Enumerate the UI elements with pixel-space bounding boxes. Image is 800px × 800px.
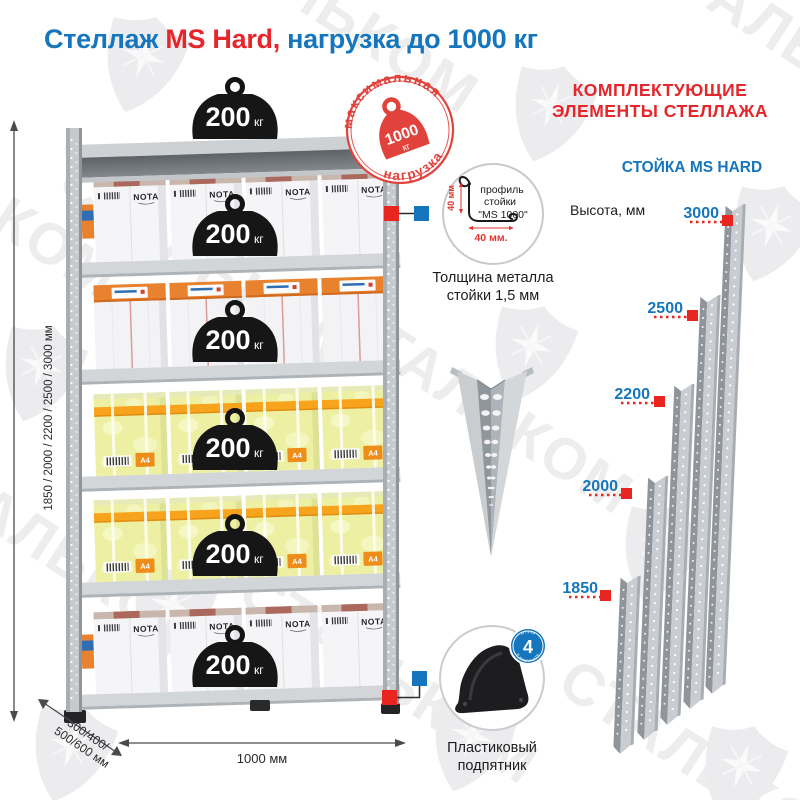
thickness-note-line1: Толщина металла [432, 270, 554, 286]
callout-red-marker [382, 690, 397, 705]
rack-foot [250, 700, 270, 711]
infographic-page: СТАЛЬКОМ СТАЛЬКОМ СТАЛЬКОМ СТАЛЬКОМ СТАЛ… [0, 0, 800, 800]
post-marker [621, 488, 632, 499]
profile-caption-line3: "MS 1000" [478, 209, 528, 221]
callout-blue-marker [412, 671, 427, 686]
width-dimension-label: 1000 мм [237, 751, 287, 766]
post-section-title: СТОЙКА MS HARD [622, 158, 762, 176]
profile-dim-horizontal-label: 40 мм. [474, 232, 507, 244]
post-marker [654, 396, 665, 407]
profile-detail-circle: 40 мм 40 мм. профиль стойки "MS 1000" [443, 164, 543, 264]
callout-blue-marker [414, 206, 429, 221]
height-dimension-label: 1850 / 2000 / 2200 / 2500 / 3000 мм [43, 325, 55, 510]
callout-red-marker [384, 206, 399, 221]
post-height-label: 2000 [582, 478, 618, 495]
components-column: 40 мм 40 мм. профиль стойки "MS 1000" То… [432, 164, 554, 774]
components-heading-line2: ЭЛЕМЕНТЫ СТЕЛЛАЖА [552, 101, 768, 121]
right-panel: КОМПЛЕКТУЮЩИЕ ЭЛЕМЕНТЫ СТЕЛЛАЖА СТОЙКА M… [552, 80, 768, 754]
rack-illustration: 1850 / 2000 / 2200 / 2500 / 3000 мм [10, 54, 471, 770]
height-dimension: 1850 / 2000 / 2200 / 2500 / 3000 мм [10, 120, 55, 722]
post-marker [722, 215, 733, 226]
post-marker [687, 310, 698, 321]
post-height-callout-1850: 1850 [562, 580, 611, 601]
post-height-callout-2200: 2200 [614, 386, 665, 407]
page-title-part2: MS Hard, [165, 24, 280, 54]
rack-post-left [66, 128, 82, 712]
post-item-1850 [613, 575, 640, 755]
foot-badge-count: 4 [523, 637, 533, 657]
post-marker [600, 590, 611, 601]
profile-dim-vertical-label: 40 мм [446, 185, 456, 211]
post-height-label: 2500 [647, 300, 683, 317]
shelf-load-badge [192, 80, 277, 140]
main-illustration: NOTA [0, 0, 800, 800]
height-axis-label: Высота, мм [570, 202, 645, 218]
thickness-note-line2: стойки 1,5 мм [447, 288, 540, 304]
profile-callout [384, 206, 429, 221]
components-heading-line1: КОМПЛЕКТУЮЩИЕ [573, 80, 748, 100]
width-dimension: 1000 мм [118, 739, 406, 766]
foot-caption-line2: подпятник [458, 758, 528, 774]
page-title-part3: нагрузка до 1000 кг [280, 24, 538, 54]
post-height-label: 2200 [614, 386, 650, 403]
post-height-label: 1850 [562, 580, 598, 597]
foot-count-badge: 4 штуки в комплекте [510, 628, 546, 664]
rack-post-right [383, 118, 399, 704]
post-height-callout-2000: 2000 [582, 478, 632, 499]
profile-caption-line2: стойки [484, 196, 516, 208]
post-height-callout-2500: 2500 [647, 300, 698, 321]
foot-detail-circle: 4 штуки в комплекте [440, 626, 546, 730]
foot-caption-line1: Пластиковый [447, 740, 537, 756]
post-3d-image [450, 367, 534, 557]
page-title: Стеллаж MS Hard, нагрузка до 1000 кг [44, 24, 538, 55]
post-height-label: 3000 [683, 205, 719, 222]
page-title-part1: Стеллаж [44, 24, 165, 54]
profile-caption-line1: профиль [480, 184, 524, 196]
